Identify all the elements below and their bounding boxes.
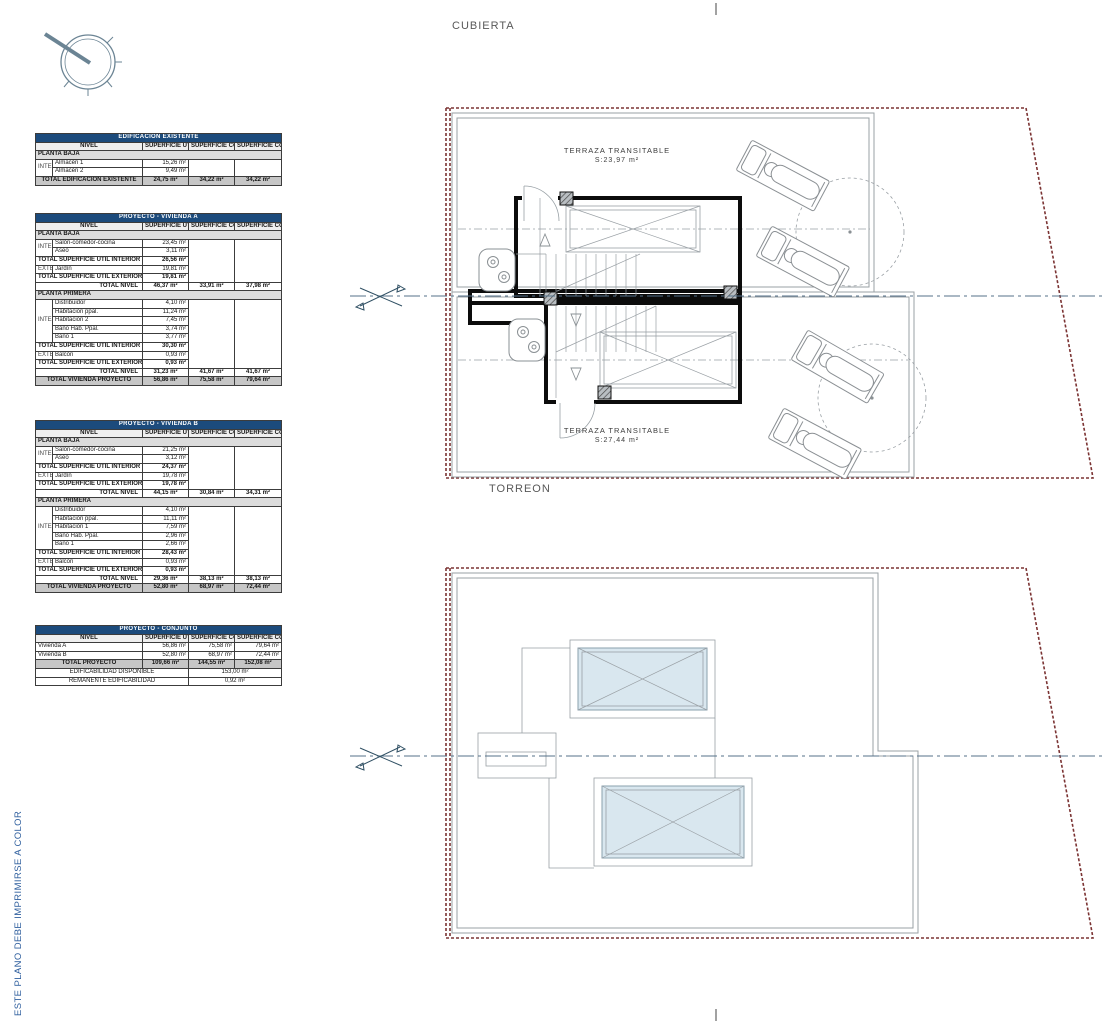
table-edificacion-existente: EDIFICACION EXISTENTENIVELSUPERFICIE UTI… xyxy=(35,133,282,186)
table-cell: EDIFICABILIDAD DISPONIBLE xyxy=(36,668,189,677)
table-cell: Balcón xyxy=(53,558,143,567)
table-cell: Almacén 1 xyxy=(53,159,143,168)
stair-tower-a-walls xyxy=(516,198,740,296)
table-row: PLANTA BAJA xyxy=(36,231,282,240)
torreon-plan: TERRAZA TRANSITABLE S:23,97 m² TERRAZA T… xyxy=(350,108,1106,479)
table-cell: 0,93 m² xyxy=(143,558,189,567)
table-cell: SUPERFICIE CONSTRUIDA xyxy=(189,429,235,438)
table-cell: 34,22 m² xyxy=(189,176,235,185)
table-cell: SUPERFICIE UTIL xyxy=(143,634,189,643)
table-cell: SUPERFICIE COMPUTABLE xyxy=(235,634,282,643)
table-row: PLANTA BAJA xyxy=(36,151,282,160)
table-cell: SUPERFICIE COMPUTABLE xyxy=(235,429,282,438)
table-row: TOTAL PROYECTO109,66 m²144,55 m²152,08 m… xyxy=(36,660,282,669)
table-cell: SUPERFICIE UTIL xyxy=(143,429,189,438)
table-cell: 23,45 m² xyxy=(143,239,189,248)
edificacion-existente: EDIFICACION EXISTENTENIVELSUPERFICIE UTI… xyxy=(35,133,282,186)
terraza-b-label: TERRAZA TRANSITABLE xyxy=(564,426,670,435)
table-row: TOTAL NIVEL46,37 m²33,91 m²37,98 m² xyxy=(36,282,282,291)
drawing-sheet: TERRAZA TRANSITABLE S:23,97 m² TERRAZA T… xyxy=(0,0,1106,1024)
table-row: PLANTA BAJA xyxy=(36,438,282,447)
table-cell: SUPERFICIE CONSTRUIDA xyxy=(189,634,235,643)
table-cell: 0,93 m² xyxy=(143,351,189,360)
table-cell: 28,43 m² xyxy=(143,549,189,558)
table-cell: Habitación 1 xyxy=(53,524,143,533)
column xyxy=(598,386,611,399)
table-cell: 19,78 m² xyxy=(143,472,189,481)
table-cell: Habitación ppal. xyxy=(53,308,143,317)
table-cell: 0,92 m² xyxy=(189,677,282,686)
table-title-row: PROYECTO - VIVIENDA B xyxy=(36,421,282,430)
table-row: Vivienda A56,86 m²75,58 m²79,64 m² xyxy=(36,643,282,652)
table-cell: Baño 1 xyxy=(53,334,143,343)
table-cell: EDIFICACION EXISTENTE xyxy=(36,134,282,143)
table-cell: Distribuidor xyxy=(53,506,143,515)
sun-lounger xyxy=(768,408,862,479)
table-cell: 44,15 m² xyxy=(143,489,189,498)
table-row: INTERIORSalón-comedor-cocina21,25 m² xyxy=(36,446,282,455)
table-cell xyxy=(235,446,282,489)
table-cell: TOTAL VIVIENDA PROYECTO xyxy=(36,584,143,593)
table-cell: 0,93 m² xyxy=(143,360,189,369)
column xyxy=(544,292,557,305)
door-swing-upper xyxy=(524,186,559,221)
table-cell xyxy=(189,159,235,176)
column xyxy=(560,192,573,205)
table-row: INTERIORDistribuidor4,10 m² xyxy=(36,299,282,308)
table-cell: 34,22 m² xyxy=(235,176,282,185)
table-cell: Baño 1 xyxy=(53,541,143,550)
table-cell: NIVEL xyxy=(36,142,143,151)
table-cell: 79,64 m² xyxy=(235,643,282,652)
table-cell: Habitación ppal. xyxy=(53,515,143,524)
table-proyecto-vivienda-b: PROYECTO - VIVIENDA BNIVELSUPERFICIE UTI… xyxy=(35,420,282,593)
table-cell: TOTAL SUPERFICIE UTIL EXTERIOR xyxy=(36,481,143,490)
table-cell: PLANTA BAJA xyxy=(36,151,282,160)
table-cell: PROYECTO - VIVIENDA A xyxy=(36,214,282,223)
table-cell: 79,64 m² xyxy=(235,377,282,386)
table-row: PLANTA PRIMERA xyxy=(36,291,282,300)
axis-break-icon xyxy=(356,745,405,770)
table-cell: 21,25 m² xyxy=(143,446,189,455)
table-row: TOTAL NIVEL44,15 m²30,84 m²34,31 m² xyxy=(36,489,282,498)
table-cell: EXTERIOR xyxy=(36,472,53,481)
table-cell: NIVEL xyxy=(36,222,143,231)
table-cell: EXTERIOR xyxy=(36,558,53,567)
table-cell: 31,23 m² xyxy=(143,368,189,377)
print-color-note: ESTE PLANO DEBE IMPRIMIRSE A COLOR xyxy=(13,811,24,1016)
cubierta-title: CUBIERTA xyxy=(452,20,515,32)
table-cell: 3,77 m² xyxy=(143,334,189,343)
terraza-a-label: TERRAZA TRANSITABLE xyxy=(564,146,670,155)
column xyxy=(724,286,737,299)
table-cell: TOTAL SUPERFICIE UTIL INTERIOR xyxy=(36,342,143,351)
table-cell: 2,66 m² xyxy=(143,541,189,550)
table-cell: TOTAL SUPERFICIE UTIL INTERIOR xyxy=(36,549,143,558)
table-title-row: EDIFICACION EXISTENTE xyxy=(36,134,282,143)
table-cell: Aseo xyxy=(53,248,143,257)
table-cell: Balcón xyxy=(53,351,143,360)
table-cell: PLANTA BAJA xyxy=(36,438,282,447)
table-cell: TOTAL SUPERFICIE UTIL EXTERIOR xyxy=(36,274,143,283)
table-cell: SUPERFICIE UTIL xyxy=(143,222,189,231)
table-cell: 52,80 m² xyxy=(143,651,189,660)
table-cell: INTERIOR xyxy=(36,159,53,176)
table-cell: 4,10 m² xyxy=(143,299,189,308)
table-cell: TOTAL PROYECTO xyxy=(36,660,143,669)
table-cell: Almacén 2 xyxy=(53,168,143,177)
table-cell: TOTAL SUPERFICIE UTIL INTERIOR xyxy=(36,256,143,265)
proyecto-conjunto: PROYECTO - CONJUNTONIVELSUPERFICIE UTILS… xyxy=(35,625,282,686)
table-cell: PLANTA BAJA xyxy=(36,231,282,240)
table-cell: EXTERIOR xyxy=(36,351,53,360)
table-cell: PLANTA PRIMERA xyxy=(36,291,282,300)
table-cell: 72,44 m² xyxy=(235,651,282,660)
table-cell xyxy=(235,159,282,176)
table-cell: TOTAL SUPERFICIE UTIL EXTERIOR xyxy=(36,567,143,576)
terraza-a-area: S:23,97 m² xyxy=(595,157,639,164)
table-cell: 41,67 m² xyxy=(235,368,282,377)
table-cell: INTERIOR xyxy=(36,299,53,342)
table-cell: 24,37 m² xyxy=(143,463,189,472)
table-cell: 7,45 m² xyxy=(143,317,189,326)
stairs-upper xyxy=(516,198,640,296)
table-cell: 152,08 m² xyxy=(235,660,282,669)
table-cell xyxy=(235,239,282,282)
table-cell: 37,98 m² xyxy=(235,282,282,291)
table-cell: Habitación 2 xyxy=(53,317,143,326)
table-cell: TOTAL SUPERFICIE UTIL EXTERIOR xyxy=(36,360,143,369)
table-cell: Salón-comedor-cocina xyxy=(53,446,143,455)
table-cell: Baño Hab. Ppal. xyxy=(53,532,143,541)
table-cell xyxy=(189,506,235,575)
table-cell: SUPERFICIE CONSTRUIDA xyxy=(189,222,235,231)
table-cell: 109,66 m² xyxy=(143,660,189,669)
table-cell xyxy=(189,299,235,368)
table-cell: INTERIOR xyxy=(36,446,53,463)
table-cell: TOTAL NIVEL xyxy=(36,368,143,377)
table-cell: 29,36 m² xyxy=(143,575,189,584)
table-cell: TOTAL NIVEL xyxy=(36,282,143,291)
table-cell: 19,81 m² xyxy=(143,265,189,274)
table-cell xyxy=(235,299,282,368)
table-cell: 3,74 m² xyxy=(143,325,189,334)
table-cell: SUPERFICIE CONSTRUIDA xyxy=(189,142,235,151)
table-cell: TOTAL EDIFICACION EXISTENTE xyxy=(36,176,143,185)
table-row: EDIFICABILIDAD DISPONIBLE153,00 m² xyxy=(36,668,282,677)
table-cell: 30,30 m² xyxy=(143,342,189,351)
table-title-row: PROYECTO - VIVIENDA A xyxy=(36,214,282,223)
roof-torreon-footprint xyxy=(478,640,752,868)
table-proyecto-conjunto: PROYECTO - CONJUNTONIVELSUPERFICIE UTILS… xyxy=(35,625,282,686)
table-cell: EXTERIOR xyxy=(36,265,53,274)
table-cell: 34,31 m² xyxy=(235,489,282,498)
table-cell: 15,26 m² xyxy=(143,159,189,168)
axis-break-icon xyxy=(356,285,405,310)
table-cell: PROYECTO - VIVIENDA B xyxy=(36,421,282,430)
table-cell: 3,11 m² xyxy=(143,248,189,257)
table-cell: Baño Hab. Ppal. xyxy=(53,325,143,334)
table-cell: INTERIOR xyxy=(36,506,53,549)
table-cell: 75,58 m² xyxy=(189,377,235,386)
table-cell: 0,93 m² xyxy=(143,567,189,576)
wc-fixture-b xyxy=(509,319,545,361)
table-cell: INTERIOR xyxy=(36,239,53,256)
table-cell: 153,00 m² xyxy=(189,668,282,677)
torreon-title: TORREON xyxy=(489,483,551,495)
table-cell: TOTAL VIVIENDA PROYECTO xyxy=(36,377,143,386)
table-cell: NIVEL xyxy=(36,429,143,438)
table-row: REMANENTE EDIFICABILIDAD0,92 m² xyxy=(36,677,282,686)
table-cell: 56,86 m² xyxy=(143,377,189,386)
table-cell: 19,81 m² xyxy=(143,274,189,283)
table-cell xyxy=(189,239,235,282)
table-cell: SUPERFICIE UTIL xyxy=(143,142,189,151)
table-cell: Distribuidor xyxy=(53,299,143,308)
table-cell: Jardín xyxy=(53,265,143,274)
table-row: INTERIORAlmacén 115,26 m² xyxy=(36,159,282,168)
table-cell: REMANENTE EDIFICABILIDAD xyxy=(36,677,189,686)
table-cell: NIVEL xyxy=(36,634,143,643)
table-row: TOTAL EDIFICACION EXISTENTE24,75 m²34,22… xyxy=(36,176,282,185)
stair-tower-b-walls xyxy=(546,300,740,402)
table-cell: Vivienda B xyxy=(36,651,143,660)
plot-boundary xyxy=(446,568,1093,938)
table-proyecto-vivienda-a: PROYECTO - VIVIENDA ANIVELSUPERFICIE UTI… xyxy=(35,213,282,386)
table-cell: 4,10 m² xyxy=(143,506,189,515)
table-cell: 144,55 m² xyxy=(189,660,235,669)
table-cell: TOTAL SUPERFICIE UTIL INTERIOR xyxy=(36,463,143,472)
table-cell: TOTAL NIVEL xyxy=(36,489,143,498)
table-cell: 2,96 m² xyxy=(143,532,189,541)
table-cell: Salón-comedor-cocina xyxy=(53,239,143,248)
proyecto-vivienda-b: PROYECTO - VIVIENDA BNIVELSUPERFICIE UTI… xyxy=(35,420,282,593)
table-cell: Jardín xyxy=(53,472,143,481)
table-cell: 7,59 m² xyxy=(143,524,189,533)
table-cell: 75,58 m² xyxy=(189,643,235,652)
table-cell: 30,84 m² xyxy=(189,489,235,498)
table-cell: 11,24 m² xyxy=(143,308,189,317)
roof-outline xyxy=(452,573,918,933)
table-cell: 56,86 m² xyxy=(143,643,189,652)
table-header-row: NIVELSUPERFICIE UTILSUPERFICIE CONSTRUID… xyxy=(36,429,282,438)
table-row: TOTAL VIVIENDA PROYECTO52,80 m²68,97 m²7… xyxy=(36,584,282,593)
north-compass-icon xyxy=(45,34,122,96)
table-row: Vivienda B52,80 m²68,97 m²72,44 m² xyxy=(36,651,282,660)
table-title-row: PROYECTO - CONJUNTO xyxy=(36,626,282,635)
table-cell xyxy=(189,446,235,489)
table-cell: 72,44 m² xyxy=(235,584,282,593)
table-header-row: NIVELSUPERFICIE UTILSUPERFICIE CONSTRUID… xyxy=(36,142,282,151)
table-cell: 38,13 m² xyxy=(189,575,235,584)
table-cell: 11,11 m² xyxy=(143,515,189,524)
table-cell: Vivienda A xyxy=(36,643,143,652)
table-cell: 68,97 m² xyxy=(189,651,235,660)
table-cell: PROYECTO - CONJUNTO xyxy=(36,626,282,635)
sun-lounger xyxy=(736,140,830,211)
table-cell: 9,49 m² xyxy=(143,168,189,177)
terraza-b-area: S:27,44 m² xyxy=(595,437,639,444)
table-cell: Aseo xyxy=(53,455,143,464)
table-row: TOTAL NIVEL31,23 m²41,67 m²41,67 m² xyxy=(36,368,282,377)
table-cell: 46,37 m² xyxy=(143,282,189,291)
table-cell: SUPERFICIE COMPUTABLE xyxy=(235,222,282,231)
table-row: TOTAL VIVIENDA PROYECTO56,86 m²75,58 m²7… xyxy=(36,377,282,386)
table-cell: 41,67 m² xyxy=(189,368,235,377)
table-cell: PLANTA PRIMERA xyxy=(36,498,282,507)
table-cell xyxy=(235,506,282,575)
table-cell: TOTAL NIVEL xyxy=(36,575,143,584)
table-cell: 52,80 m² xyxy=(143,584,189,593)
table-cell: 19,78 m² xyxy=(143,481,189,490)
table-cell: 68,97 m² xyxy=(189,584,235,593)
table-header-row: NIVELSUPERFICIE UTILSUPERFICIE CONSTRUID… xyxy=(36,634,282,643)
table-cell: 38,13 m² xyxy=(235,575,282,584)
table-cell: 26,56 m² xyxy=(143,256,189,265)
table-row: INTERIORSalón-comedor-cocina23,45 m² xyxy=(36,239,282,248)
wc-fixture-a xyxy=(479,249,515,291)
sun-lounger xyxy=(791,330,884,403)
table-row: TOTAL NIVEL29,36 m²38,13 m²38,13 m² xyxy=(36,575,282,584)
table-row: INTERIORDistribuidor4,10 m² xyxy=(36,506,282,515)
cubierta-plan xyxy=(350,568,1106,938)
table-row: PLANTA PRIMERA xyxy=(36,498,282,507)
table-cell: SUPERFICIE COMPUTABLE xyxy=(235,142,282,151)
table-cell: 3,12 m² xyxy=(143,455,189,464)
table-header-row: NIVELSUPERFICIE UTILSUPERFICIE CONSTRUID… xyxy=(36,222,282,231)
table-cell: 24,75 m² xyxy=(143,176,189,185)
table-cell: 33,91 m² xyxy=(189,282,235,291)
proyecto-vivienda-a: PROYECTO - VIVIENDA ANIVELSUPERFICIE UTI… xyxy=(35,213,282,386)
